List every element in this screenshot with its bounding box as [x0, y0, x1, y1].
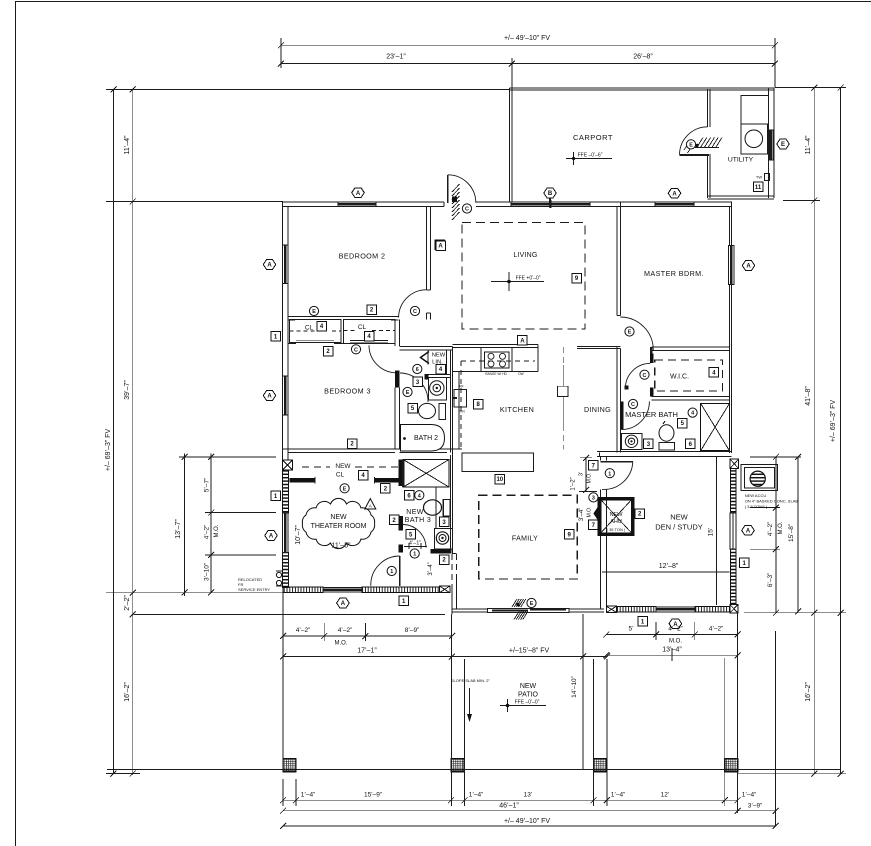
svg-text:3’: 3’ — [579, 472, 585, 476]
svg-text:15’–9”: 15’–9” — [364, 792, 382, 799]
svg-text:ON 4” BASKED CONC. SLAB: ON 4” BASKED CONC. SLAB — [745, 499, 799, 504]
svg-text:4’–2”: 4’–2” — [709, 626, 723, 633]
svg-text:C: C — [413, 309, 417, 315]
svg-text:DW: DW — [518, 372, 523, 376]
svg-text:11: 11 — [755, 185, 762, 191]
svg-text:15’: 15’ — [708, 527, 715, 536]
svg-text:M.O.: M.O. — [778, 521, 784, 534]
svg-text:+/– 49’–10” FV: +/– 49’–10” FV — [504, 35, 550, 42]
svg-text:+/– 69’–3” FV: +/– 69’–3” FV — [105, 429, 112, 472]
svg-text:3’–10”: 3’–10” — [204, 563, 211, 581]
svg-text:M.O.: M.O. — [587, 473, 593, 484]
svg-text:NEW: NEW — [670, 513, 688, 522]
svg-text:1’–2”: 1’–2” — [571, 477, 577, 490]
svg-text:11’–5”: 11’–5” — [332, 543, 352, 550]
svg-text:( 3.5 TONS ): ( 3.5 TONS ) — [745, 504, 768, 509]
svg-text:BATH 2: BATH 2 — [414, 435, 438, 442]
svg-text:3’–4”: 3’–4” — [428, 562, 434, 575]
svg-text:4’–2”: 4’–2” — [296, 627, 310, 634]
svg-text:E: E — [781, 142, 785, 148]
svg-text:LIVING: LIVING — [513, 252, 537, 259]
svg-text:1: 1 — [608, 471, 611, 477]
svg-text:A: A — [341, 601, 346, 607]
svg-text:1: 1 — [390, 569, 393, 575]
svg-text:NEW: NEW — [406, 509, 424, 516]
svg-text:DINING: DINING — [584, 405, 611, 414]
svg-text:NEW: NEW — [432, 353, 446, 359]
svg-text:5’: 5’ — [628, 626, 634, 633]
svg-text:4’–2”: 4’–2” — [338, 627, 352, 634]
svg-text:15’–8”: 15’–8” — [788, 524, 795, 542]
svg-text:E: E — [343, 486, 347, 492]
svg-text:FFE –0’–0”: FFE –0’–0” — [515, 700, 540, 706]
svg-text:26’–8”: 26’–8” — [633, 54, 653, 61]
svg-text:DEN / STUDY: DEN / STUDY — [655, 523, 703, 532]
svg-text:4’–2”: 4’–2” — [668, 626, 682, 633]
svg-text:2’–2”: 2’–2” — [124, 595, 131, 611]
svg-text:M.O.: M.O. — [669, 639, 682, 645]
svg-text:CL: CL — [358, 324, 367, 331]
svg-text:AHU: AHU — [610, 519, 622, 525]
svg-text:FAMILY: FAMILY — [512, 536, 538, 543]
svg-text:PATIO: PATIO — [518, 692, 539, 699]
svg-text:+/– 49’–10” FV: +/– 49’–10” FV — [504, 818, 550, 825]
svg-text:NEW: NEW — [330, 514, 347, 521]
svg-text:CL: CL — [305, 325, 314, 332]
svg-text:1’–4”: 1’–4” — [742, 792, 756, 799]
svg-text:MASTER BATH: MASTER BATH — [625, 410, 678, 419]
svg-text:11’–4”: 11’–4” — [124, 135, 131, 155]
svg-text:SLOPE SLAB MIN. 2”: SLOPE SLAB MIN. 2” — [451, 678, 491, 683]
svg-text:5’–7”: 5’–7” — [204, 478, 211, 492]
svg-text:46’–1”: 46’–1” — [499, 803, 519, 810]
svg-text:3’–4”: 3’–4” — [579, 508, 585, 521]
svg-text:BATH 3: BATH 3 — [405, 517, 431, 524]
svg-text:E: E — [312, 309, 316, 315]
svg-text:E: E — [530, 601, 534, 607]
svg-text:4’–1”: 4’–1” — [409, 541, 421, 547]
svg-text:A: A — [672, 191, 677, 197]
svg-text:RF: RF — [459, 385, 463, 389]
svg-text:13’: 13’ — [524, 792, 533, 799]
svg-text:4’–2”: 4’–2” — [204, 525, 211, 539]
svg-text:W.I.C.: W.I.C. — [670, 374, 689, 381]
svg-text:A: A — [269, 534, 274, 540]
svg-text:14’–10”: 14’–10” — [571, 676, 578, 698]
svg-text:NEW: NEW — [335, 463, 351, 470]
svg-text:10’–7”: 10’–7” — [295, 525, 302, 545]
svg-text:12’: 12’ — [661, 792, 670, 799]
svg-text:17’–1”: 17’–1” — [357, 648, 377, 655]
svg-text:13’–7”: 13’–7” — [175, 519, 182, 539]
svg-text:39’–7”: 39’–7” — [124, 380, 131, 400]
svg-text:12’–8”: 12’–8” — [659, 563, 679, 570]
svg-text:CL: CL — [336, 472, 345, 479]
svg-text:A: A — [520, 339, 525, 345]
svg-text:KITCHEN: KITCHEN — [500, 405, 534, 414]
svg-text:E: E — [628, 330, 632, 336]
svg-text:( 35 TON ): ( 35 TON ) — [607, 527, 626, 532]
svg-text:1: 1 — [413, 552, 416, 558]
svg-text:1’–4”: 1’–4” — [301, 792, 315, 799]
svg-text:E: E — [406, 390, 410, 396]
svg-text:A: A — [369, 504, 372, 509]
svg-text:M.O.: M.O. — [587, 507, 593, 518]
svg-text:A: A — [746, 264, 751, 270]
svg-text:A: A — [746, 529, 751, 535]
svg-text:16’–2”: 16’–2” — [124, 682, 131, 702]
svg-text:A: A — [356, 191, 361, 197]
svg-text:C: C — [465, 207, 469, 213]
svg-text:3: 3 — [592, 496, 595, 502]
svg-text:UTILITY: UTILITY — [728, 157, 754, 164]
svg-text:MASTER BDRM.: MASTER BDRM. — [644, 269, 704, 278]
svg-text:FFE +0’–0”: FFE +0’–0” — [516, 276, 541, 282]
svg-text:23’–1”: 23’–1” — [386, 54, 406, 61]
svg-text:BEDROOM 2: BEDROOM 2 — [339, 252, 386, 261]
svg-text:C: C — [354, 347, 358, 353]
svg-text:+/–15’–8” FV: +/–15’–8” FV — [509, 648, 550, 655]
svg-text:SERVICE ENTRY: SERVICE ENTRY — [238, 587, 270, 592]
svg-text:13’–4”: 13’–4” — [662, 647, 682, 654]
svg-text:6’–3”: 6’–3” — [767, 573, 774, 587]
svg-text:CARPORT: CARPORT — [573, 133, 613, 142]
svg-text:1’–4”: 1’–4” — [469, 792, 483, 799]
svg-text:A: A — [267, 263, 272, 269]
svg-text:4: 4 — [418, 493, 421, 499]
svg-text:3’–9”: 3’–9” — [748, 803, 762, 810]
svg-text:B: B — [548, 191, 553, 197]
svg-text:M.O.: M.O. — [214, 524, 220, 537]
svg-text:1’–4”: 1’–4” — [611, 792, 625, 799]
svg-text:TW: TW — [756, 175, 762, 180]
svg-text:A: A — [438, 244, 443, 250]
svg-text:PAN: PAN — [458, 410, 465, 414]
svg-text:RANGE W/ HD: RANGE W/ HD — [485, 372, 507, 376]
svg-text:NEW ACCU: NEW ACCU — [745, 493, 767, 498]
svg-text:4: 4 — [691, 411, 694, 417]
svg-text:A: A — [267, 394, 272, 400]
svg-text:+/– 69’–3” FV: +/– 69’–3” FV — [830, 400, 837, 443]
svg-text:6: 6 — [416, 367, 419, 373]
svg-text:NEW: NEW — [520, 683, 537, 690]
svg-text:8’–9”: 8’–9” — [405, 627, 419, 634]
svg-text:4’–2”: 4’–2” — [767, 522, 774, 536]
svg-text:FFE –0’–6”: FFE –0’–6” — [578, 153, 603, 159]
svg-text:M.O.: M.O. — [335, 641, 348, 647]
svg-text:41’–8”: 41’–8” — [805, 386, 812, 406]
svg-text:BEDROOM 3: BEDROOM 3 — [324, 387, 371, 396]
svg-text:NEW: NEW — [610, 512, 624, 518]
svg-text:THEATER ROOM: THEATER ROOM — [311, 523, 367, 530]
svg-text:11’–4”: 11’–4” — [805, 135, 812, 155]
svg-text:C: C — [631, 402, 635, 408]
svg-text:16’–2”: 16’–2” — [805, 682, 812, 702]
svg-text:10: 10 — [496, 477, 503, 483]
svg-text:C: C — [643, 373, 647, 379]
svg-text:E: E — [689, 143, 693, 149]
